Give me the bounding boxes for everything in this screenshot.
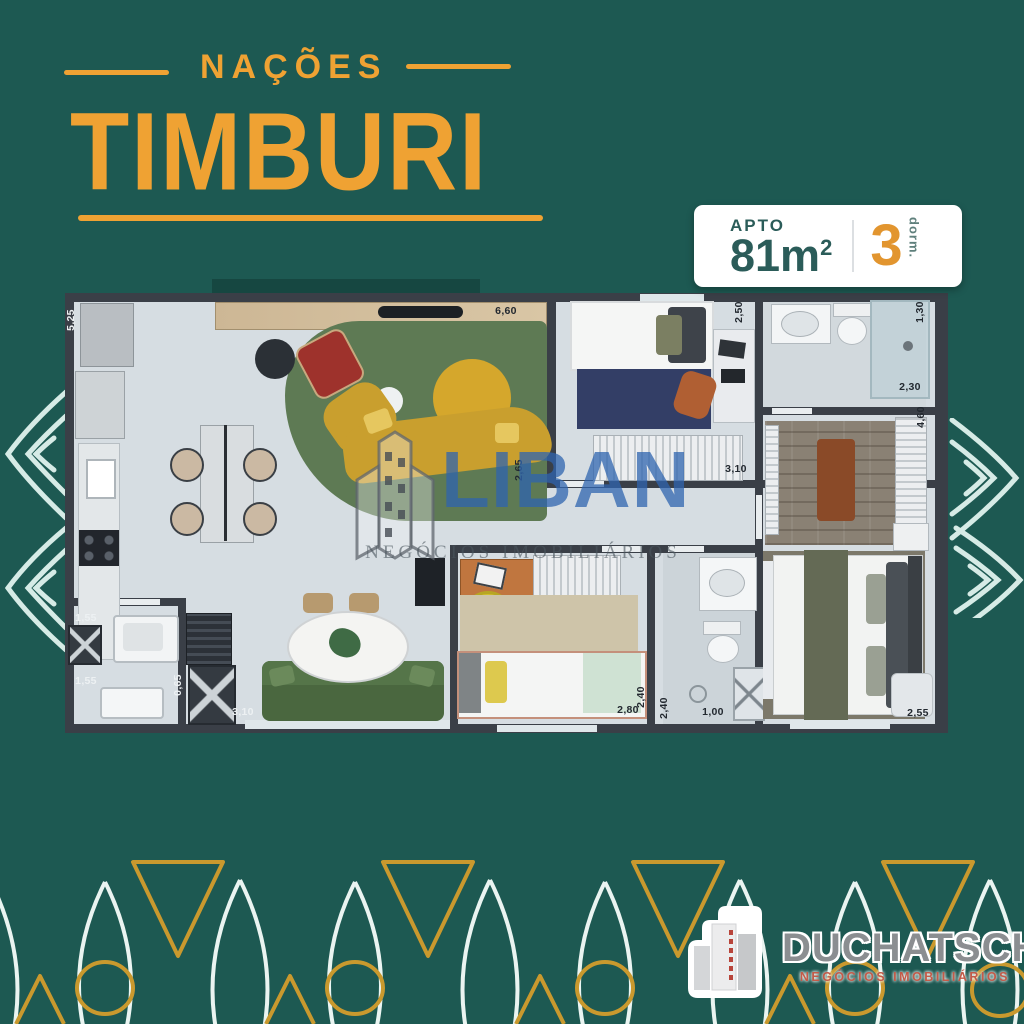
fridge [80,303,134,367]
badge-dorm-count: 3 [870,217,902,275]
bed-pillow-olive [656,315,682,355]
unit-spec-badge: APTO 81m2 3 dorm. [694,205,962,287]
toilet-tank [833,303,871,317]
master-tv-console [763,561,773,699]
badge-area-number: 81m [730,230,820,281]
wall-bedroom2-right [647,545,655,733]
bed-pillow-gray [866,574,886,624]
badge-dorm-label: dorm. [907,217,922,275]
brand-title: TIMBURI [70,88,488,216]
wood-chair [349,593,379,613]
tv-panel [415,558,445,606]
duct-column [186,613,232,665]
ottoman [891,673,933,717]
stove [79,530,119,566]
bed-throw [583,653,641,713]
closet-shelf [765,425,779,535]
wood-chair [303,593,333,613]
agency-name: DUCHATSCH [782,926,1024,971]
window-living-balcony [245,720,455,729]
brand-dash-right [406,64,511,69]
toilet-bowl [837,317,867,345]
badge-area-sup: 2 [820,235,832,260]
wall-right [935,293,948,733]
bed-headboard [459,653,481,713]
bedroom1-wardrobe [593,435,743,481]
closet-bench [817,439,855,521]
kitchen-cabinet [75,371,125,439]
door-bath2 [668,546,704,552]
window-bedroom1 [640,294,704,301]
toilet-bowl [707,635,739,663]
toilet-tank [703,621,741,635]
work-table-divider [224,425,227,541]
left-chevron-pattern [0,388,72,658]
bed-pillow [485,661,507,703]
door-bath1 [772,408,812,414]
wall-top [65,293,948,302]
window-bedroom2 [497,725,597,732]
wall-left [65,293,74,733]
shower-head [903,341,913,351]
side-table [255,339,295,379]
wall-bed1-bath1 [755,293,763,415]
bedroom1-bed [570,301,714,371]
shaft [68,625,102,665]
washing-machine [100,687,164,719]
shaft [733,667,765,721]
buildings-icon [678,906,778,1002]
door-bedroom2 [602,546,642,552]
bathroom1-sink [781,311,819,337]
nightstand [893,523,929,551]
poster: NAÇÕES TIMBURI APTO 81m2 3 dorm. [0,0,1024,1024]
laundry-sink-bowl [123,623,163,651]
barbecue-grill [378,306,463,318]
desk-item [721,369,745,383]
brand-underline [78,215,543,221]
badge-divider [852,220,854,272]
bed-runner [804,550,848,720]
badge-area-value: 81m2 [730,236,832,277]
dining-chair [170,502,204,536]
sofa-pillow [495,423,519,443]
brand-pre-title: NAÇÕES [200,48,387,87]
floor-plan [65,293,948,733]
brand-logo: NAÇÕES TIMBURI [0,0,600,240]
brand-dash-left [64,70,169,75]
badge-area-block: APTO 81m2 [730,216,832,277]
agency-logo: DUCHATSCH NEGÓCIOS IMOBILIÁRIOS [678,898,1018,1010]
window-master [790,720,890,729]
door-master [756,495,762,539]
dining-chair [243,502,277,536]
bathroom2-sink [709,569,745,597]
wall-laundry-right [178,598,186,733]
shaft [188,665,236,725]
dining-chair [243,448,277,482]
dining-chair [170,448,204,482]
agency-tagline: NEGÓCIOS IMOBILIÁRIOS [782,970,1010,984]
kitchen-sink [86,459,116,499]
right-chevron-pattern [946,418,1024,618]
shower-drain [689,685,707,703]
bed-pillow-gray [866,646,886,696]
laptop [718,339,746,358]
bedroom2-rug [460,595,638,651]
shower-stall [870,300,930,399]
bedroom2-bed [457,651,647,719]
door-bedroom1 [560,481,604,487]
